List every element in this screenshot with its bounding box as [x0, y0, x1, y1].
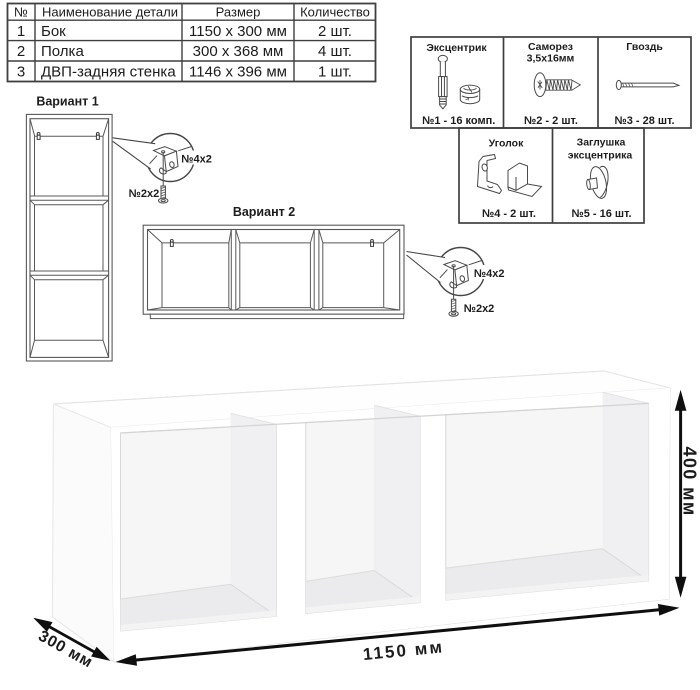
svg-text:4 шт.: 4 шт.: [318, 43, 352, 60]
svg-text:400 мм: 400 мм: [680, 446, 700, 516]
svg-text:№3 - 28 шт.: №3 - 28 шт.: [614, 115, 674, 127]
svg-text:№4х2: №4х2: [474, 268, 505, 280]
svg-text:1146 x 396 мм: 1146 x 396 мм: [189, 64, 287, 81]
svg-text:№5 - 16 шт.: №5 - 16 шт.: [571, 208, 631, 220]
svg-text:Эксцентрик: Эксцентрик: [426, 42, 487, 54]
svg-text:Наименование детали: Наименование детали: [42, 5, 178, 20]
svg-text:3,5х16мм: 3,5х16мм: [527, 52, 575, 64]
svg-text:№1 - 16 комп.: №1 - 16 комп.: [422, 115, 495, 127]
svg-text:№4х2: №4х2: [181, 153, 212, 165]
svg-text:1: 1: [17, 23, 25, 40]
svg-text:Уголок: Уголок: [489, 137, 524, 149]
svg-text:Заглушка: Заглушка: [577, 137, 626, 149]
svg-text:Бок: Бок: [41, 23, 66, 40]
svg-text:Вариант 2: Вариант 2: [233, 205, 295, 219]
svg-text:Размер: Размер: [216, 5, 261, 20]
svg-text:№2х2: №2х2: [129, 188, 160, 200]
svg-text:2: 2: [17, 43, 25, 60]
svg-text:Вариант 1: Вариант 1: [36, 94, 98, 108]
svg-text:Полка: Полка: [41, 43, 84, 60]
svg-text:1 шт.: 1 шт.: [318, 64, 352, 81]
svg-text:3: 3: [17, 64, 25, 81]
svg-text:Гвоздь: Гвоздь: [626, 41, 663, 53]
svg-text:1150 x 300 мм: 1150 x 300 мм: [189, 23, 287, 40]
svg-text:эксцентрика: эксцентрика: [568, 149, 633, 161]
svg-text:№4 - 2 шт.: №4 - 2 шт.: [482, 208, 536, 220]
svg-text:1150 мм: 1150 мм: [362, 637, 445, 664]
svg-text:2 шт.: 2 шт.: [318, 23, 352, 40]
svg-text:ДВП-задняя стенка: ДВП-задняя стенка: [41, 64, 176, 81]
svg-text:300 x 368 мм: 300 x 368 мм: [193, 43, 284, 60]
svg-text:№: №: [14, 5, 28, 20]
svg-text:№2 - 2 шт.: №2 - 2 шт.: [524, 115, 578, 127]
svg-text:Количество: Количество: [300, 5, 370, 20]
svg-text:Саморез: Саморез: [528, 41, 573, 53]
svg-text:№2х2: №2х2: [464, 303, 495, 315]
